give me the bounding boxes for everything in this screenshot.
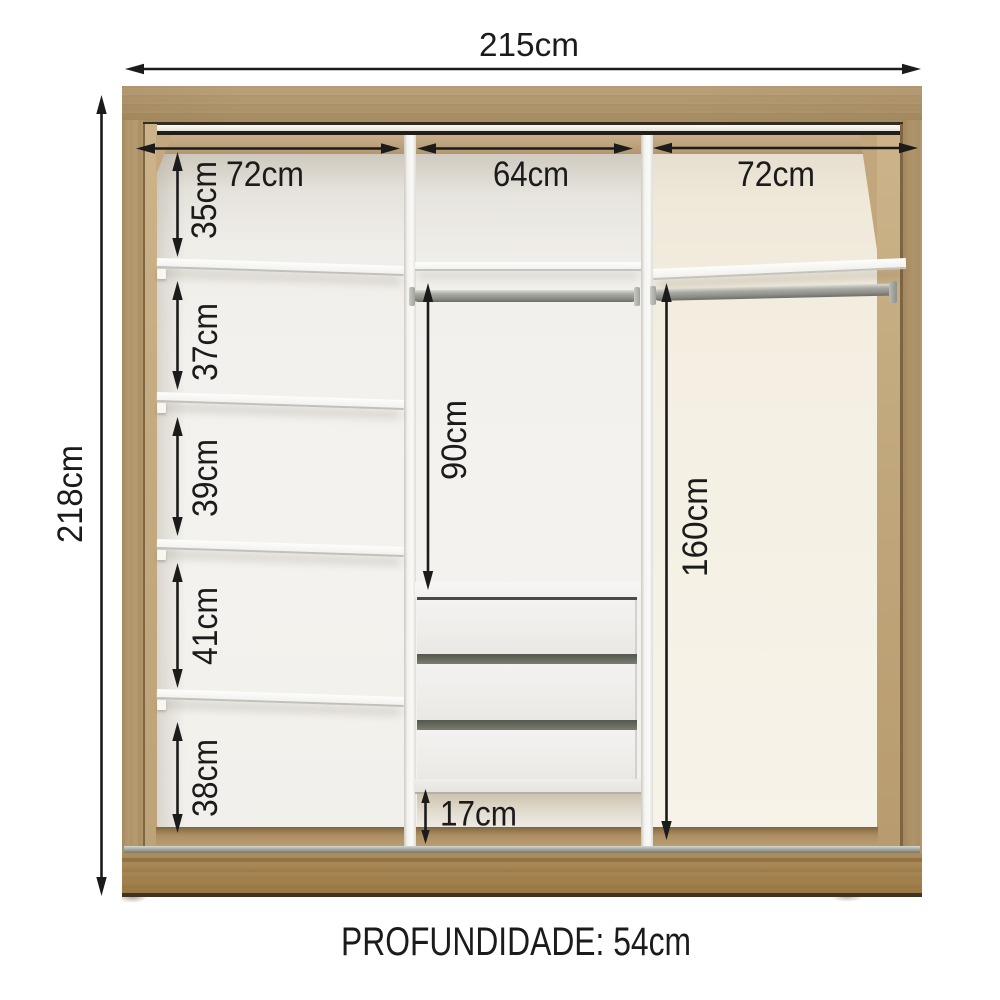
svg-text:215cm: 215cm bbox=[479, 26, 579, 63]
svg-text:72cm: 72cm bbox=[737, 154, 815, 194]
svg-text:17cm: 17cm bbox=[440, 794, 517, 834]
svg-text:37cm: 37cm bbox=[185, 303, 225, 381]
svg-text:39cm: 39cm bbox=[185, 439, 225, 517]
svg-text:38cm: 38cm bbox=[185, 739, 225, 817]
svg-text:41cm: 41cm bbox=[185, 587, 225, 665]
svg-text:35cm: 35cm bbox=[184, 161, 224, 239]
svg-text:90cm: 90cm bbox=[434, 400, 474, 480]
svg-text:218cm: 218cm bbox=[50, 445, 90, 543]
svg-text:72cm: 72cm bbox=[226, 154, 304, 194]
svg-text:64cm: 64cm bbox=[493, 154, 569, 194]
svg-text:160cm: 160cm bbox=[675, 477, 715, 577]
svg-text:PROFUNDIDADE: 54cm: PROFUNDIDADE: 54cm bbox=[341, 920, 691, 964]
